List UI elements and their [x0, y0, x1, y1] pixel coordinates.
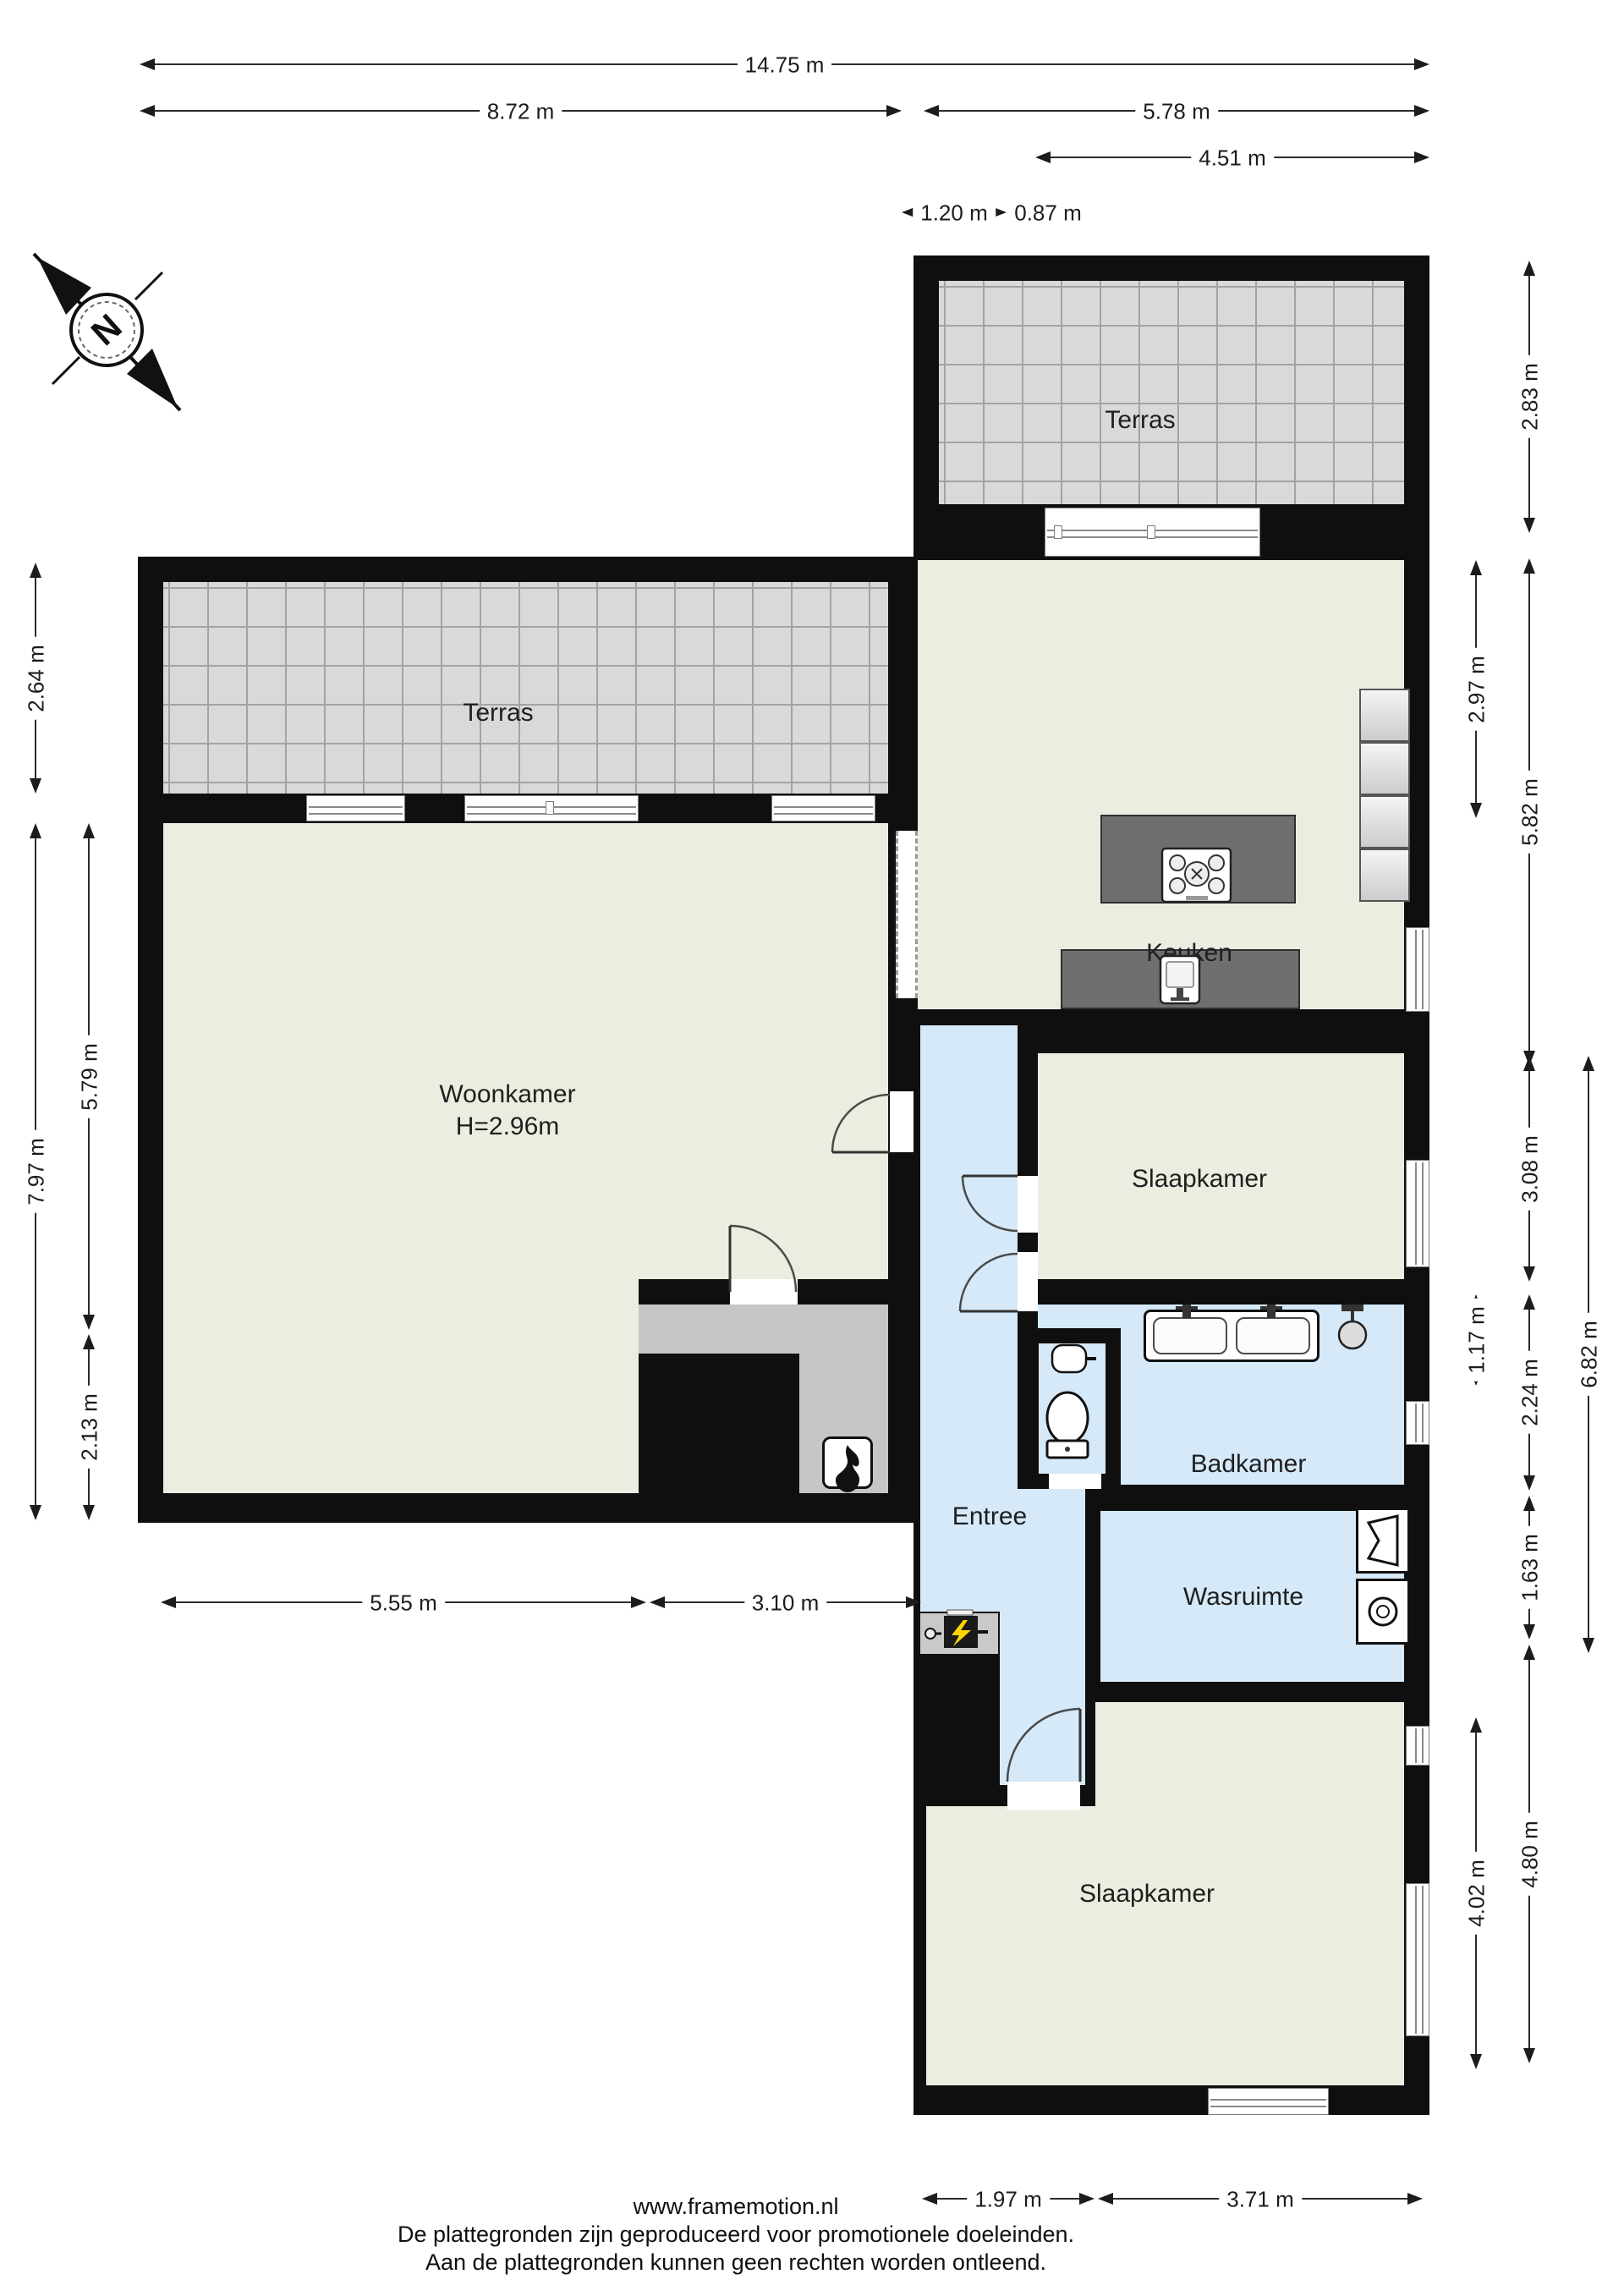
arrow-left-icon [650, 1596, 665, 1608]
label-slaapkamer-top: Slaapkamer [1132, 1165, 1267, 1194]
arrow-down-icon [1523, 1624, 1535, 1640]
kitchen-island [1100, 815, 1296, 904]
floor-slaapkamer-bottom-left [926, 1806, 1095, 2085]
dim-right-laundry: 1.63 m [1517, 1496, 1541, 1640]
arrow-up-icon [83, 1334, 95, 1349]
arrow-left-icon [924, 105, 939, 117]
arrow-right-icon [886, 105, 902, 117]
dim-bottom-living-right: 3.10 m [650, 1590, 921, 1614]
window-slaapkamer-top-right [1406, 1160, 1429, 1267]
dim-top-left: 8.72 m [140, 99, 902, 123]
floor-terras-top [939, 281, 1404, 504]
label-wasruimte: Wasruimte [1183, 1583, 1303, 1612]
footer: www.framemotion.nl De plattegronden zijn… [228, 2193, 1243, 2277]
arrow-left-icon [140, 58, 155, 70]
arrow-down-icon [30, 778, 41, 794]
window-tick-3 [1147, 525, 1155, 539]
arrow-up-icon [83, 823, 95, 838]
dim-bottom-living-left: 5.55 m [161, 1590, 646, 1614]
dim-top-right: 5.78 m [924, 99, 1429, 123]
nook-void [639, 1354, 799, 1493]
arrow-up-icon [30, 823, 41, 838]
dim-left-living-upper: 5.79 m [77, 823, 101, 1330]
label-badkamer: Badkamer [1191, 1450, 1307, 1479]
arrow-down-icon [1523, 2048, 1535, 2063]
arrow-down-icon [83, 1315, 95, 1330]
arrow-left-icon [161, 1596, 176, 1608]
arrow-down-icon [1523, 1475, 1535, 1491]
floor-wc [1039, 1343, 1106, 1474]
window-tick-1 [546, 801, 554, 815]
label-terras-left: Terras [463, 699, 533, 728]
dim-top-small-left: 1.20 m [902, 200, 1007, 224]
arrow-up-icon [1523, 261, 1535, 276]
door-opening-wc [1049, 1474, 1101, 1489]
arrow-down-icon [1523, 518, 1535, 533]
kitchen-cabinet-3 [1359, 795, 1410, 849]
window-slaapkamer-bottom [1208, 2088, 1329, 2115]
label-woonkamer-height: H=2.96m [456, 1112, 560, 1141]
arrow-right-icon [906, 1596, 921, 1608]
dim-top-total: 14.75 m [140, 52, 1429, 76]
arrow-right-icon [631, 1596, 646, 1608]
window-tick-2 [1054, 525, 1062, 539]
arrow-up-icon [1470, 1717, 1482, 1733]
arrow-down-icon [1583, 1638, 1594, 1653]
window-terras-woonkamer-3 [771, 795, 875, 821]
washing-machine [1356, 1579, 1410, 1645]
dim-right-bathroom: 2.24 m [1517, 1294, 1541, 1491]
washbasin-right [1236, 1317, 1310, 1354]
arrow-down-icon [1470, 803, 1482, 818]
arrow-up-icon [1523, 1294, 1535, 1310]
dim-right-kitchen-inner: 2.97 m [1464, 560, 1488, 818]
kitchen-cabinet-2 [1359, 742, 1410, 795]
arrow-up-icon [1470, 560, 1482, 575]
door-opening-entree-slaapkamer [1018, 1176, 1038, 1233]
dim-right-wc: 1.17 m [1464, 1294, 1488, 1386]
arrow-right-icon [1407, 2193, 1423, 2205]
dim-left-terrace: 2.64 m [24, 563, 47, 794]
window-badkamer-right [1406, 1401, 1429, 1445]
compass-n-label: N [84, 306, 129, 353]
arrow-down-icon [1470, 2054, 1482, 2069]
window-terras-woonkamer-1 [306, 795, 405, 821]
door-opening-entree-badkamer [1018, 1252, 1038, 1311]
dim-right-bedroom-bottom-inner: 4.02 m [1464, 1717, 1488, 2069]
label-entree: Entree [952, 1502, 1027, 1531]
label-terras-top: Terras [1105, 406, 1175, 435]
arrow-down-icon [30, 1505, 41, 1520]
dim-top-small-right: 0.87 m [1010, 200, 1086, 224]
label-keuken: Keuken [1146, 939, 1232, 968]
dim-right-terrace: 2.83 m [1517, 261, 1541, 533]
arrow-up-icon [1523, 1645, 1535, 1660]
arrow-up-icon [1583, 1056, 1594, 1071]
window-slaapkamer-bottom-right-2 [1406, 1883, 1429, 2036]
window-keuken-right [1406, 927, 1429, 1012]
arrow-up-icon [1523, 558, 1535, 574]
arrow-up-icon [1523, 1056, 1535, 1071]
dim-right-bedroom-top: 3.08 m [1517, 1056, 1541, 1282]
dim-right-kitchen-total: 5.82 m [1517, 558, 1541, 1066]
floorplan-canvas: Terras Terras Keuken Woonkamer H=2.96m S… [0, 0, 1624, 2296]
floor-terras-left [163, 582, 888, 794]
compass-rose-icon: N [24, 245, 201, 423]
arrow-up-icon [30, 563, 41, 578]
window-slaapkamer-bottom-right-1 [1406, 1726, 1429, 1766]
meter-cupboard-void [919, 1656, 1000, 1785]
dim-top-right-inner: 4.51 m [1035, 146, 1429, 169]
footer-disclaimer-1: De plattegronden zijn geproduceerd voor … [228, 2221, 1243, 2249]
dim-right-bedroom-bottom-outer: 4.80 m [1517, 1645, 1541, 2063]
arrow-right-icon [1414, 105, 1429, 117]
dim-left-living-total: 7.97 m [24, 823, 47, 1520]
washbasin-vanity [1144, 1310, 1319, 1362]
opening-woonkamer-keuken [896, 831, 918, 998]
arrow-left-icon [140, 105, 155, 117]
arrow-left-icon [1035, 151, 1051, 163]
front-door-opening [1007, 1782, 1080, 1810]
dim-right-middle-total: 6.82 m [1577, 1056, 1600, 1653]
footer-disclaimer-2: Aan de plattegronden kunnen geen rechten… [228, 2249, 1243, 2277]
arrow-right-icon [1414, 58, 1429, 70]
fireplace [822, 1436, 873, 1489]
arrow-right-icon [1414, 151, 1429, 163]
kitchen-cabinet-4 [1359, 849, 1410, 902]
dim-left-living-lower: 2.13 m [77, 1334, 101, 1520]
arrow-down-icon [1523, 1266, 1535, 1282]
washbasin-left [1153, 1317, 1227, 1354]
label-slaapkamer-bottom: Slaapkamer [1079, 1880, 1215, 1909]
arrow-down-icon [83, 1505, 95, 1520]
label-woonkamer: Woonkamer [439, 1080, 575, 1109]
meter-cupboard-panel [919, 1612, 1000, 1656]
footer-site-url: www.framemotion.nl [228, 2193, 1243, 2221]
dryer [1356, 1508, 1410, 1574]
door-opening-woonkamer-entree [890, 1091, 913, 1152]
kitchen-cabinet-1 [1359, 689, 1410, 742]
door-opening-nook [730, 1279, 798, 1305]
arrow-up-icon [1523, 1496, 1535, 1511]
